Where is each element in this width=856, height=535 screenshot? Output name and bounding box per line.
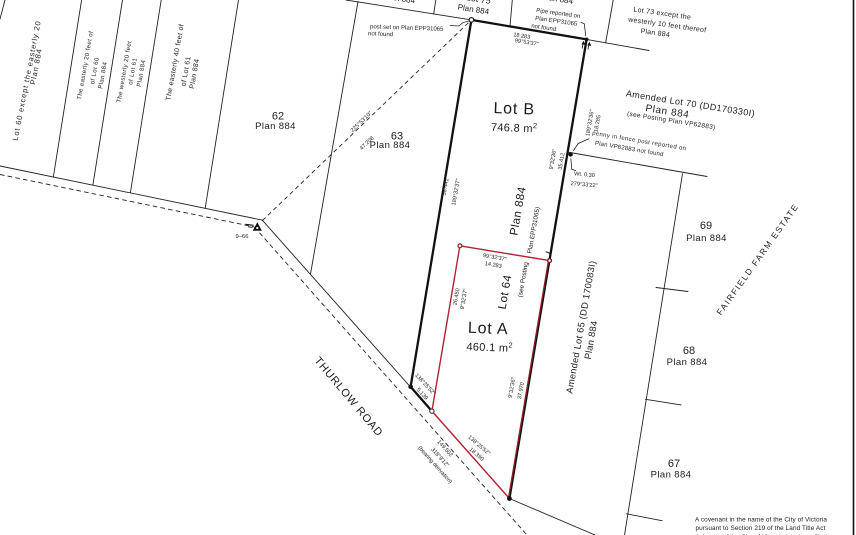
svg-text:A covenant in the name of the: A covenant in the name of the City of Vi… bbox=[695, 517, 827, 524]
svg-text:Plan 884: Plan 884 bbox=[255, 121, 296, 132]
svg-text:68: 68 bbox=[683, 345, 695, 357]
svg-text:69: 69 bbox=[700, 220, 712, 232]
svg-text:67: 67 bbox=[668, 458, 680, 470]
svg-text:Plan 884: Plan 884 bbox=[667, 357, 708, 368]
svg-text:Lot A: Lot A bbox=[468, 320, 509, 338]
svg-text:Plan 884: Plan 884 bbox=[651, 470, 692, 481]
svg-text:Lot B: Lot B bbox=[493, 100, 535, 118]
svg-text:not found: not found bbox=[368, 31, 393, 38]
svg-text:pursuant to Section 219 of the: pursuant to Section 219 of the Land Titl… bbox=[696, 525, 826, 532]
svg-text:Plan 884: Plan 884 bbox=[370, 140, 411, 151]
svg-text:Plan 884: Plan 884 bbox=[686, 233, 727, 244]
svg-text:9–66: 9–66 bbox=[236, 234, 249, 240]
